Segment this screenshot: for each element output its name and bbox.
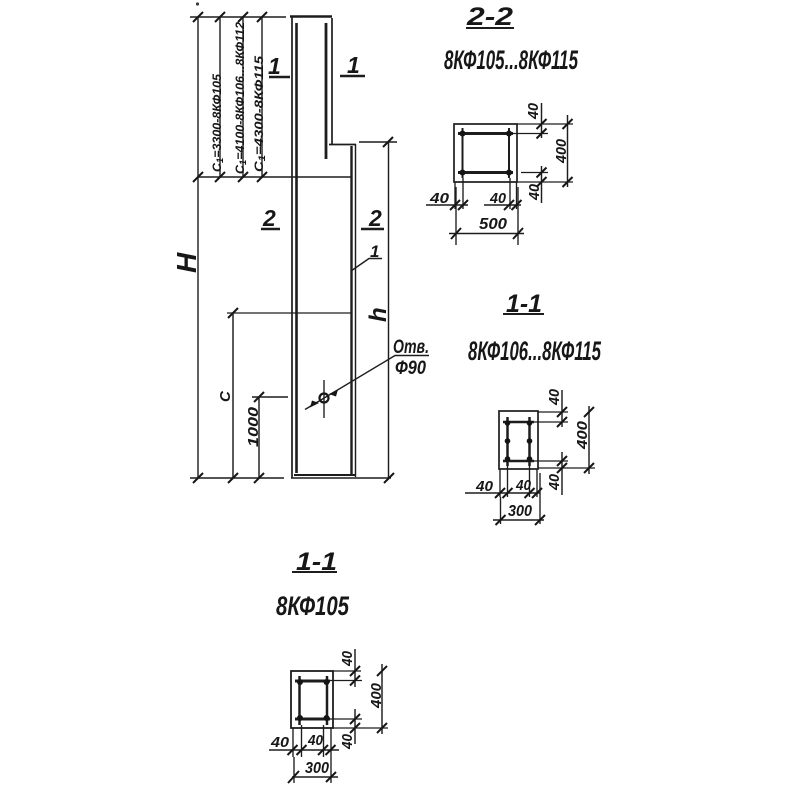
svg-text:40: 40 <box>339 650 356 666</box>
svg-text:400: 400 <box>368 682 385 709</box>
svg-text:2: 2 <box>262 205 276 231</box>
svg-text:С: С <box>217 390 234 402</box>
svg-text:1000: 1000 <box>245 406 262 447</box>
svg-text:8КФ105...8КФ115: 8КФ105...8КФ115 <box>444 45 579 75</box>
svg-text:500: 500 <box>479 216 507 233</box>
svg-text:8КФ105: 8КФ105 <box>276 591 350 621</box>
svg-text:40: 40 <box>526 183 543 201</box>
svg-text:300: 300 <box>305 760 329 777</box>
svg-text:40: 40 <box>546 473 563 491</box>
svg-text:40: 40 <box>546 388 563 406</box>
svg-text:Ф90: Ф90 <box>395 358 426 379</box>
svg-text:2-2: 2-2 <box>466 3 513 31</box>
svg-text:С1=3300-8КФ105: С1=3300-8КФ105 <box>210 74 225 172</box>
svg-text:1: 1 <box>347 52 360 78</box>
svg-text:Отв.: Отв. <box>393 337 429 358</box>
svg-text:С1=4100-8КФ106...8КФ112: С1=4100-8КФ106...8КФ112 <box>233 22 248 174</box>
svg-text:40: 40 <box>270 734 290 751</box>
svg-text:С1=4300-8КФ115: С1=4300-8КФ115 <box>252 56 267 172</box>
svg-text:Н: Н <box>171 252 202 273</box>
svg-text:h: h <box>365 307 392 322</box>
svg-text:40: 40 <box>515 477 531 494</box>
svg-text:40: 40 <box>307 732 323 749</box>
svg-text:300: 300 <box>508 503 532 520</box>
svg-text:40: 40 <box>429 190 450 207</box>
svg-text:2: 2 <box>368 205 382 231</box>
svg-text:1: 1 <box>268 53 281 79</box>
svg-text:400: 400 <box>574 420 591 450</box>
svg-text:40: 40 <box>489 190 507 207</box>
svg-text:40: 40 <box>525 102 542 120</box>
svg-text:40: 40 <box>339 733 356 749</box>
svg-text:8КФ106...8КФ115: 8КФ106...8КФ115 <box>468 336 602 366</box>
svg-text:40: 40 <box>475 478 494 495</box>
svg-text:400: 400 <box>553 138 570 164</box>
